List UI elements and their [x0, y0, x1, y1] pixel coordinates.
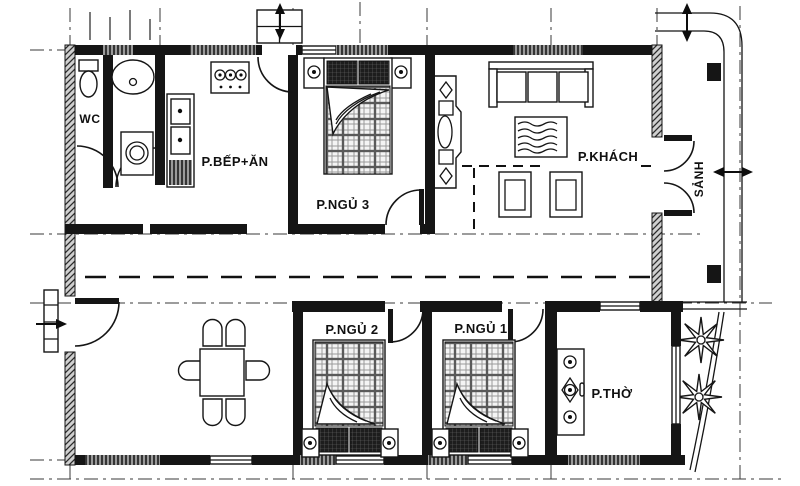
plant [676, 374, 722, 420]
dining-table [200, 349, 244, 396]
entry-arrow-side [713, 167, 753, 177]
entry-arrow-top [682, 3, 692, 42]
window [103, 45, 133, 55]
room-label-living: P.KHÁCH [578, 149, 638, 164]
window [513, 45, 583, 55]
bed-3 [304, 58, 411, 174]
window [568, 455, 640, 465]
plant [678, 317, 724, 363]
window [600, 302, 640, 310]
porch-column [707, 63, 721, 81]
room-label-bedroom-2: P.NGỦ 2 [325, 322, 378, 337]
room-label-hall: SẢNH [691, 161, 706, 197]
room-label-bedroom-1: P.NGỦ 1 [454, 321, 507, 336]
tv-cabinet [435, 76, 461, 188]
window [672, 346, 680, 424]
window [336, 45, 388, 55]
washing-machine [121, 132, 153, 175]
stove [211, 62, 249, 93]
window [336, 456, 384, 464]
back-steps [257, 3, 302, 43]
porch-column [707, 265, 721, 283]
room-label-kitchen-dining: P.BẾP+ĂN [202, 154, 269, 169]
window [190, 45, 256, 55]
floor-plan-page: WC P.BẾP+ĂN P.NGỦ 3 P.KHÁCH SẢNH P.NGỦ 2… [0, 0, 800, 486]
room-label-bedroom-3: P.NGỦ 3 [316, 197, 369, 212]
bed-2 [302, 340, 398, 457]
bathtub [112, 60, 154, 94]
window [210, 456, 252, 464]
armchair [499, 172, 531, 217]
armchair [550, 172, 582, 217]
side-steps [36, 290, 67, 352]
bed-1 [432, 340, 528, 457]
dining-set [179, 320, 270, 426]
floor-plan-canvas: WC P.BẾP+ĂN P.NGỦ 3 P.KHÁCH SẢNH P.NGỦ 2… [0, 0, 800, 486]
window [302, 46, 336, 54]
sofa [489, 62, 593, 107]
coffee-table-rug [515, 117, 567, 157]
window [468, 456, 512, 464]
kitchen-counter [167, 94, 194, 187]
toilet [79, 60, 98, 97]
room-label-worship: P.THỜ [591, 386, 633, 401]
window [85, 455, 160, 465]
altar-table [557, 349, 584, 435]
room-label-wc: WC [79, 112, 100, 126]
